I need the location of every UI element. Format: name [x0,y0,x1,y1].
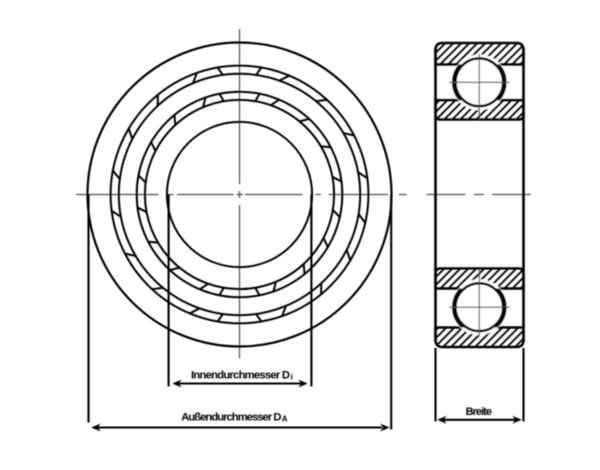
svg-text:A: A [282,414,288,423]
svg-text:Breite: Breite [466,406,492,418]
svg-text:Außendurchmesser D: Außendurchmesser D [181,411,281,423]
svg-text:i: i [291,373,293,382]
svg-text:Innendurchmesser D: Innendurchmesser D [191,370,290,382]
